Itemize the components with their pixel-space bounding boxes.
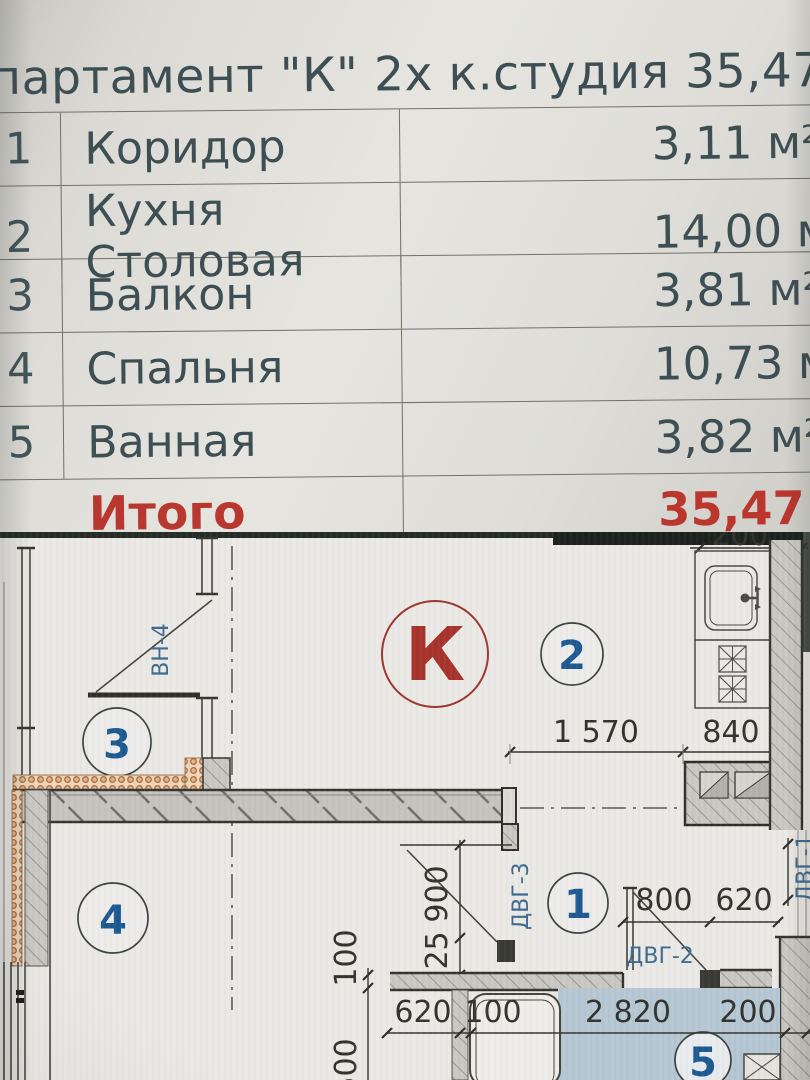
door-dvg3-label: ДВГ-3 — [509, 862, 534, 930]
window-vn4-label: ВН-4 — [149, 623, 174, 677]
svg-text:К: К — [405, 612, 466, 698]
door-dvg1-label: ДВГ-1 — [793, 834, 810, 902]
apartment-title: партамент "К" 2х к.студия 35,47 м2 — [0, 11, 810, 112]
table-row: 5 Ванная 3,82 м² — [0, 398, 810, 479]
door-dvg2-label: ДВГ-2 — [626, 944, 694, 969]
svg-text:3: 3 — [103, 722, 131, 768]
dim-bath-2820: 2 820 — [585, 995, 671, 1030]
area-table: партамент "К" 2х к.студия 35,47 м2 1 Кор… — [0, 11, 810, 538]
room-area: 3,11 м² — [399, 105, 810, 181]
room-marker-2: 2 — [541, 623, 603, 685]
floor-plan-drawing: 200 ВН-4 — [0, 532, 810, 1080]
vent-shaft — [685, 762, 773, 825]
room-marker-4: 4 — [78, 883, 148, 953]
table-row: 2 Кухня Столовая 14,00 м — [0, 178, 810, 259]
svg-text:5: 5 — [689, 1040, 717, 1080]
room-name: Ванная — [63, 403, 403, 479]
dim-hall-620: 620 — [715, 883, 772, 918]
svg-text:1: 1 — [564, 882, 592, 928]
room-name: Балкон — [61, 256, 401, 332]
dim-bath-100: 100 — [464, 995, 521, 1030]
svg-text:840: 840 — [702, 715, 759, 750]
room-marker-3: 3 — [83, 708, 151, 776]
row-number: 3 — [0, 271, 62, 322]
area-table-section: партамент "К" 2х к.студия 35,47 м2 1 Кор… — [0, 0, 810, 532]
dim-left-100: 100 — [329, 929, 364, 986]
washing-machine-icon — [744, 1054, 780, 1080]
table-row: 1 Коридор 3,11 м² — [0, 104, 810, 185]
room-area: 10,73 м — [401, 326, 810, 403]
room-area: 3,81 м² — [400, 252, 810, 328]
svg-text:200: 200 — [711, 532, 768, 553]
right-wall-upper — [770, 540, 802, 830]
floor-plan-section: 200 ВН-4 — [0, 532, 810, 1080]
room-marker-5: 5 — [675, 1032, 731, 1080]
dim-bath-620: 620 — [394, 995, 451, 1030]
photo-right-edge — [803, 532, 810, 652]
svg-text:4: 4 — [99, 898, 127, 944]
svg-text:2: 2 — [558, 633, 586, 679]
dim-hall-800: 800 — [635, 883, 692, 918]
svg-text:1 570: 1 570 — [553, 715, 639, 750]
room-marker-1: 1 — [548, 873, 608, 933]
room-area: 3,82 м² — [402, 399, 810, 475]
room-name: Коридор — [60, 109, 400, 185]
dim-door-900: 900 — [420, 865, 455, 922]
dim-bath-200: 200 — [719, 995, 776, 1030]
dim-left-500: 500 — [329, 1038, 364, 1080]
floorplan-photo: партамент "К" 2х к.студия 35,47 м2 1 Кор… — [0, 0, 810, 1080]
row-number: 2 — [0, 212, 61, 263]
row-number: 1 — [0, 124, 60, 175]
row-number: 4 — [0, 344, 63, 395]
row-number: 5 — [0, 417, 63, 468]
room-name: Спальня — [62, 330, 402, 406]
table-row: 3 Балкон 3,81 м² — [0, 251, 810, 332]
table-row: 4 Спальня 10,73 м — [0, 325, 810, 406]
